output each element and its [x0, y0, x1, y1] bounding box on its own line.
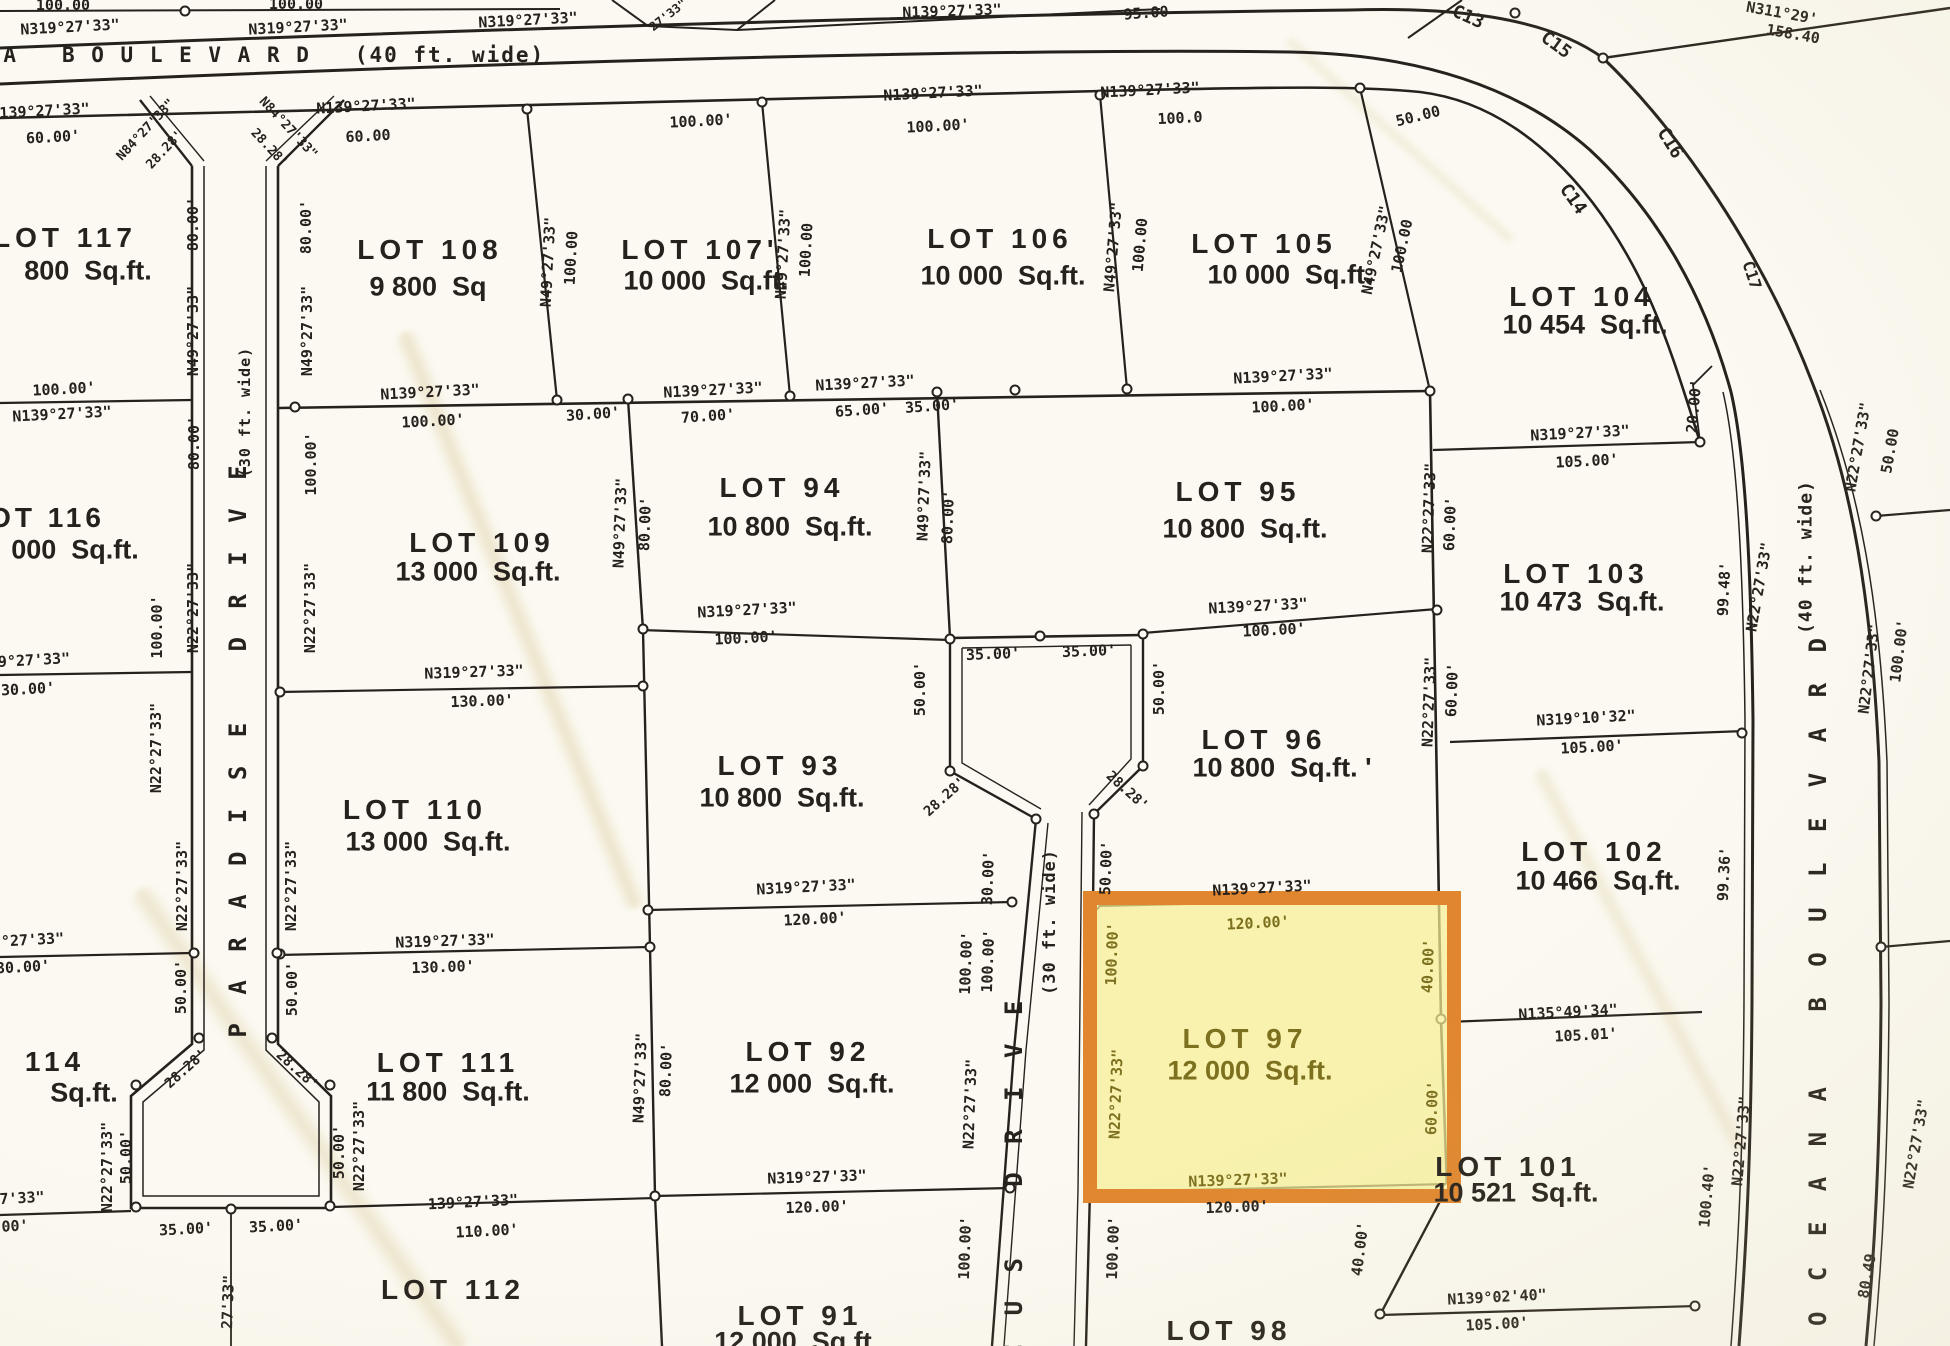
map-label: 50.00	[1877, 427, 1903, 475]
map-label: N49°27'33"	[298, 286, 316, 376]
lot-title-label: 800 Sq.ft.	[24, 256, 152, 287]
street-name-label: (30 ft. wide)	[1040, 849, 1060, 995]
lot-title-label: 12 000 Sq.ft	[714, 1327, 872, 1346]
map-label: 105.00'	[1555, 450, 1619, 471]
lot-title-label: LOT 98	[1167, 1315, 1292, 1346]
lot-title-label: LOT 112	[381, 1274, 525, 1306]
map-label: 100.00'	[956, 931, 976, 995]
map-label: 50.00'	[1096, 841, 1116, 896]
lot-title-label: LOT 97	[1183, 1023, 1308, 1055]
map-label: 130.00'	[411, 957, 475, 977]
map-label: N49°27'33"	[537, 216, 560, 307]
lot-title-label: 10 000 Sq.ft.	[1207, 260, 1372, 291]
map-label: N22°27'33"	[1418, 657, 1439, 748]
map-label: 110.00'	[455, 1220, 519, 1241]
map-label: 50.00'	[1150, 661, 1168, 715]
map-label: 80.00'	[635, 497, 655, 552]
map-label: 35.00'	[966, 644, 1021, 664]
map-label: 27'33"	[218, 1275, 238, 1330]
lot-title-label: LOT 104	[1509, 281, 1654, 313]
map-label: 50.00'	[911, 662, 929, 716]
map-label: 100.00	[1129, 217, 1152, 273]
map-label: 30.00'	[565, 403, 620, 425]
map-label: 50.00'	[117, 1130, 135, 1184]
lot-title-label: 10 000 Sq.ft.	[920, 261, 1085, 292]
map-label: N139°27'33"	[902, 0, 1002, 21]
map-label: N22°27'33"	[1841, 401, 1874, 493]
map-label: 35.00'	[248, 1216, 303, 1237]
lot-title-label: 10 800 Sq.ft.	[699, 783, 864, 814]
map-label: 120.00'	[1205, 1197, 1269, 1217]
map-label: 100.00'	[1251, 395, 1315, 416]
map-label: 30.00'	[0, 957, 51, 978]
lot-title-label: LOT 117	[0, 222, 137, 254]
map-label: 100.00'	[906, 115, 970, 136]
map-label: N319°27'33"	[478, 8, 578, 31]
lot-title-label: 10 466 Sq.ft.	[1515, 866, 1680, 897]
map-label: N22°27'33"	[350, 1101, 368, 1191]
map-label: 100.00'	[401, 410, 465, 431]
map-label: 60.00'	[1440, 497, 1460, 552]
map-label: C17	[1738, 258, 1765, 291]
map-label: N319°27'33"	[424, 661, 524, 682]
map-label: 60.00'	[25, 127, 80, 148]
map-label: 100.00	[1388, 218, 1417, 275]
map-label: 80.49	[1854, 1252, 1880, 1300]
map-label: C13	[1449, 1, 1487, 33]
map-label: N22°27'33"	[301, 563, 319, 653]
map-label: 120.00'	[785, 1197, 849, 1217]
map-label: 100.00'	[955, 1216, 975, 1280]
map-label: 105.01'	[1554, 1024, 1618, 1045]
map-label: 80.00'	[185, 416, 203, 470]
map-label: 100.00'	[302, 432, 320, 495]
map-label: 100.00'	[148, 595, 166, 658]
lot-title-label: LOT 109	[409, 527, 554, 559]
lot-title-label: LOT 92	[746, 1036, 871, 1068]
map-label: N319°27'33"	[20, 15, 120, 38]
map-label: 50.00	[1394, 102, 1442, 130]
lot-title-label: 114	[25, 1046, 85, 1078]
map-label: N22°27'33"	[282, 841, 300, 931]
map-label: 35.00'	[1062, 641, 1117, 661]
map-label: N139°27'33"	[1188, 1169, 1288, 1190]
map-label: 28.28'	[273, 1047, 321, 1093]
plat-map: 100.00100.00N319°27'33"N319°27'33"N319°2…	[0, 0, 1950, 1346]
map-label: N139°27'33"	[663, 378, 763, 401]
lot-title-label: LOT 110	[343, 794, 487, 826]
map-label: N139°27'33"	[815, 371, 915, 394]
map-label: 28.28'	[1103, 768, 1151, 814]
map-label: N49°27'33"	[1100, 201, 1126, 293]
lot-title-label: 10 521 Sq.ft.	[1433, 1178, 1598, 1209]
map-label: 100.00'	[1242, 619, 1306, 640]
map-label: N135°49'34"	[1518, 1000, 1618, 1023]
map-label: N139°27'33"	[1233, 364, 1333, 387]
map-label: 100.0	[1157, 108, 1203, 128]
street-name-label: P A R A D I S E D R I V E	[224, 458, 252, 1037]
map-label: 9°27'33"	[0, 929, 65, 951]
map-label: 35.00'	[158, 1219, 213, 1240]
map-label: 00'	[1, 1216, 29, 1235]
lot-title-label: 12 000 Sq.ft.	[729, 1069, 894, 1100]
map-label: 30.00'	[0, 679, 55, 700]
street-name-label: C U S D R I V E	[1000, 994, 1028, 1346]
map-label: N22°27'33"	[184, 563, 202, 653]
map-label: 80.00'	[184, 197, 202, 251]
lot-title-label: LOT 106	[927, 223, 1072, 255]
map-label: N49°27'33"	[629, 1033, 650, 1124]
map-label: N139°27'33"	[883, 81, 983, 104]
lot-title-label: LOT 93	[718, 750, 843, 782]
lot-title-label: 10 454 Sq.ft.	[1502, 310, 1667, 341]
map-label: 50.00'	[283, 962, 301, 1016]
map-label: N49°27'33"	[772, 208, 795, 299]
lot-title-label: 10 800 Sq.ft.	[707, 512, 872, 543]
map-label: 100.00'	[1886, 619, 1912, 684]
map-label: N139°27'33"	[0, 99, 90, 122]
map-label: 100.00	[36, 0, 90, 14]
map-label: 20.00'	[1683, 378, 1706, 434]
map-label: N22°27'33"	[1742, 541, 1775, 633]
map-label: 40.00'	[1418, 939, 1438, 994]
map-label: N319°27'33"	[1530, 421, 1630, 444]
map-label: 100.00'	[32, 378, 96, 399]
map-label: N319°27'33"	[248, 15, 348, 38]
map-label: 7'33"	[0, 1188, 45, 1208]
map-label: N49°27'33"	[609, 478, 630, 569]
map-label: N49°27'33"	[1358, 204, 1394, 296]
street-name-label: O C E A N A B O U L E V A R D	[1804, 630, 1832, 1326]
lot-title-label: LOT 108	[357, 234, 502, 266]
lot-title-label: LOT 102	[1521, 836, 1666, 868]
lot-title-label: LOT 107'	[621, 234, 778, 266]
map-label: 100.00'	[714, 627, 778, 648]
map-label: N319°27'33"	[767, 1166, 867, 1187]
map-label: 30.00'	[978, 851, 998, 906]
map-label: N22°27'33"	[959, 1059, 980, 1150]
map-label: N139°27'33"	[1100, 78, 1200, 101]
map-label: 80.00'	[938, 490, 958, 545]
map-label: N139°27'33"	[12, 402, 112, 425]
lot-title-label: 10 800 Sq.ft. '	[1193, 753, 1372, 784]
map-label: 100.40'	[1695, 1164, 1718, 1229]
map-label: 65.00'	[834, 399, 889, 421]
map-label: 139°27'33"	[427, 1191, 518, 1214]
map-label: 80.00'	[297, 200, 315, 254]
lot-title-label: LOT 94	[720, 472, 845, 504]
map-label: 99.48'	[1714, 561, 1735, 616]
street-name-label: (30 ft. wide)	[236, 347, 254, 477]
map-label: 105.00'	[1560, 736, 1624, 757]
map-label: N319°27'33"	[756, 875, 856, 898]
map-label: 95.00	[1123, 2, 1169, 23]
map-label: N139°27'33"	[316, 94, 416, 117]
map-label: N22°27'33"	[98, 1122, 116, 1212]
map-label: 9°27'33"	[0, 649, 71, 671]
map-label: C14	[1555, 180, 1591, 219]
map-label: 35.00'	[904, 395, 959, 417]
map-label: 120.00'	[783, 908, 847, 929]
lot-title-label: 11 800 Sq.ft.	[366, 1077, 530, 1108]
map-label: 60.00'	[1442, 663, 1462, 718]
map-label: 40.00'	[1348, 1221, 1372, 1277]
lot-title-label: 13 000 Sq.ft.	[345, 827, 510, 858]
map-label: 100.00	[269, 0, 323, 13]
map-label: 50.00'	[330, 1125, 348, 1179]
lot-title-label: OT 116	[0, 502, 105, 534]
map-label: 50.00'	[172, 960, 190, 1014]
map-label: 80.00'	[656, 1043, 676, 1098]
map-label: N319°10'32"	[1536, 706, 1636, 729]
map-label-layer: 100.00100.00N319°27'33"N319°27'33"N319°2…	[0, 0, 1950, 1346]
map-label: 70.00'	[680, 405, 735, 427]
map-label: N49°27'33"	[184, 286, 202, 376]
map-label: N139°27'33"	[1212, 876, 1312, 899]
map-label: 100.00'	[1103, 1216, 1123, 1280]
lot-title-label: LOT 105	[1191, 228, 1336, 260]
map-label: N22°27'33"	[1418, 463, 1439, 554]
lot-title-label: LOT 111	[377, 1047, 519, 1079]
map-label: 99.36'	[1714, 846, 1735, 901]
map-label: C16	[1652, 124, 1687, 163]
map-label: 100.00	[561, 230, 582, 285]
map-label: N319°27'33"	[697, 598, 797, 621]
map-label: 105.00'	[1465, 1313, 1529, 1334]
lot-title-label: 10 473 Sq.ft.	[1499, 587, 1664, 618]
lot-title-label: 12 000 Sq.ft.	[1167, 1056, 1332, 1087]
lot-title-label: 9 800 Sq	[369, 272, 486, 303]
map-label: N139°02'40"	[1447, 1285, 1547, 1308]
map-label: N49°27'33"	[913, 451, 934, 542]
map-label: 100.00'	[669, 110, 733, 131]
map-label: N22°27'33"	[147, 703, 165, 793]
map-label: N22°27'33"	[173, 841, 191, 931]
map-label: 28.28'	[162, 1046, 210, 1092]
map-label: N22°27'33"	[1899, 1098, 1932, 1190]
lot-title-label: LOT 95	[1176, 476, 1301, 508]
lot-title-label: 13 000 Sq.ft.	[395, 557, 560, 588]
map-label: 60.00	[345, 126, 391, 146]
map-label: C15	[1537, 27, 1576, 63]
lot-title-label: LOT 96	[1202, 724, 1327, 756]
map-label: N139°27'33"	[1208, 594, 1308, 617]
map-label: 60.00'	[1422, 1081, 1442, 1136]
lot-title-label: Sq.ft.	[50, 1078, 118, 1109]
map-label: 100.00	[796, 222, 817, 277]
lot-title-label: LOT 103	[1503, 558, 1648, 590]
map-label: 28.28'	[921, 774, 969, 820]
map-label: 120.00'	[1226, 912, 1290, 933]
lot-title-label: 10 800 Sq.ft.	[1162, 514, 1327, 545]
lot-title-label: 000 Sq.ft.	[11, 535, 139, 566]
map-label: N22°27'33"	[1855, 623, 1884, 715]
map-label: 130.00'	[450, 691, 514, 711]
street-name-label: (40 ft. wide)	[1796, 480, 1817, 634]
map-label: N22°27'33"	[1105, 1049, 1126, 1140]
map-label: N139°27'33"	[380, 380, 480, 403]
map-label: N22°27'33"	[1728, 1095, 1754, 1187]
map-label: 27'33"	[647, 0, 690, 34]
map-label: N319°27'33"	[395, 930, 495, 951]
map-label: 100.00'	[1102, 922, 1122, 986]
street-name-label: A N A B O U L E V A R D (40 ft. wide)	[0, 43, 545, 67]
lot-title-label: 10 000 Sq.ft.	[623, 266, 788, 297]
map-label: 100.00'	[978, 929, 998, 993]
